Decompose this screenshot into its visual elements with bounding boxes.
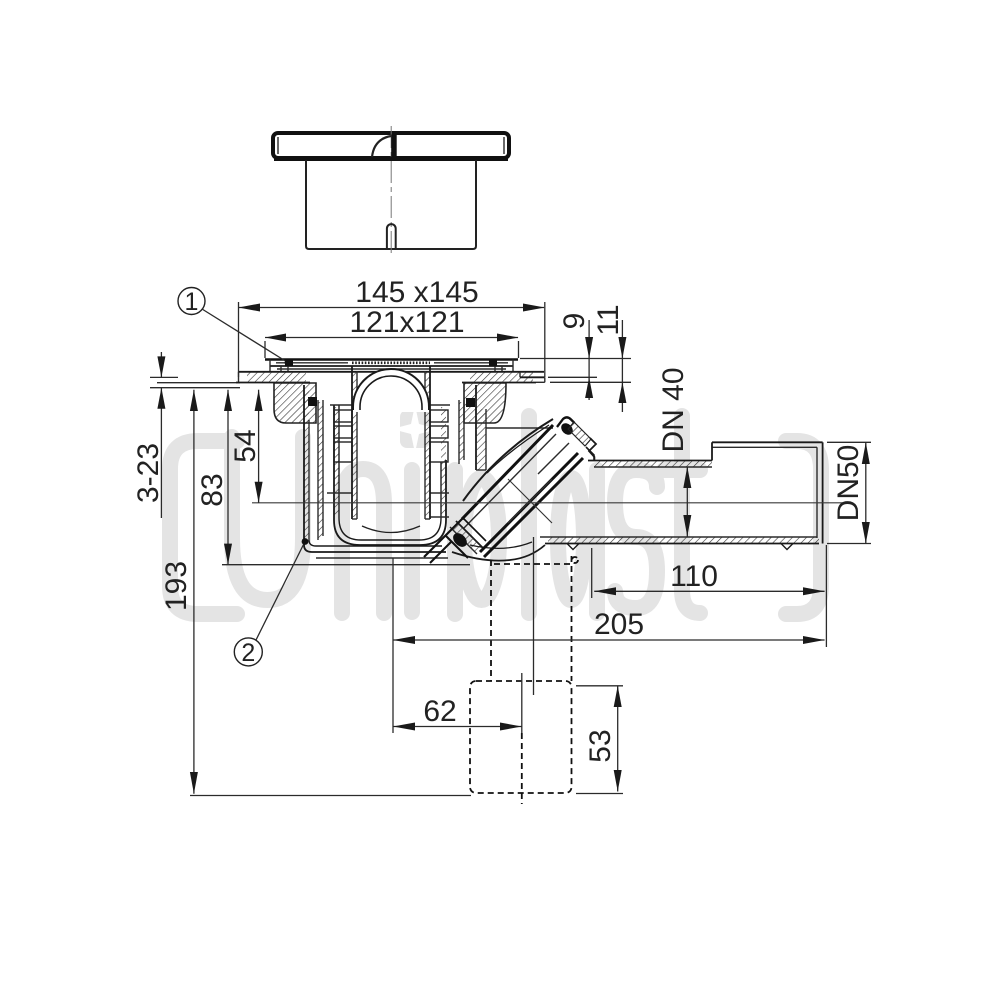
svg-text:53: 53 <box>584 729 617 762</box>
svg-text:11: 11 <box>592 304 625 335</box>
svg-text:121x121: 121x121 <box>349 306 464 339</box>
svg-text:83: 83 <box>196 473 229 506</box>
svg-text:DN50: DN50 <box>832 445 865 522</box>
svg-text:1: 1 <box>185 288 199 316</box>
svg-text:110: 110 <box>670 560 718 593</box>
svg-text:193: 193 <box>160 561 193 611</box>
svg-text:DN 40: DN 40 <box>657 367 690 452</box>
svg-text:62: 62 <box>423 695 456 728</box>
svg-text:3-23: 3-23 <box>132 443 165 503</box>
svg-text:2: 2 <box>241 639 255 667</box>
svg-text:205: 205 <box>594 608 644 641</box>
svg-text:54: 54 <box>229 429 262 462</box>
svg-text:145 x145: 145 x145 <box>355 276 478 309</box>
svg-text:9: 9 <box>558 313 591 330</box>
